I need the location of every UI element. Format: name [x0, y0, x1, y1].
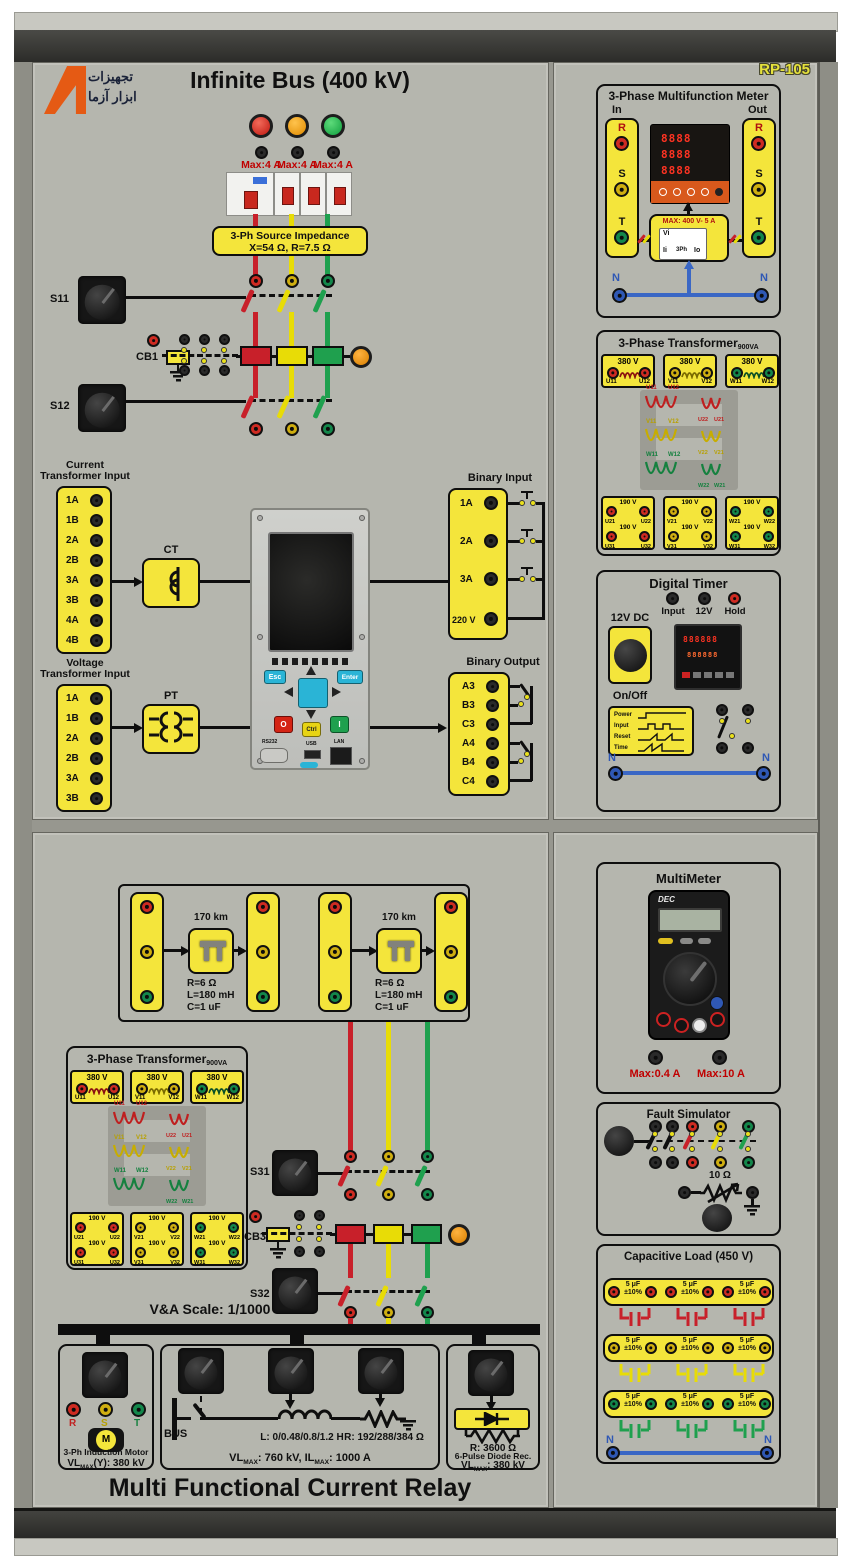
- wire: [386, 1244, 391, 1278]
- terminal-jack[interactable]: [486, 775, 499, 788]
- wire: [253, 312, 258, 348]
- banana-jack-black[interactable]: [746, 1186, 759, 1199]
- lv-voltage: 190 V: [603, 499, 653, 506]
- banana-jack-yellow[interactable]: [608, 1342, 620, 1354]
- inductor-rotary-switch[interactable]: [268, 1348, 314, 1394]
- timing-label: Input: [614, 723, 629, 730]
- terminal-jack[interactable]: [219, 365, 230, 376]
- multimeter-button[interactable]: [658, 938, 673, 944]
- fault-dashed-link: [646, 1140, 756, 1142]
- mcb-breaker[interactable]: [274, 172, 300, 216]
- wire: [177, 1417, 191, 1420]
- motor-rotary-switch[interactable]: [82, 1352, 128, 1398]
- mcb-toggle[interactable]: [334, 187, 346, 205]
- contact-dot: [518, 758, 524, 764]
- banana-jack-yellow[interactable]: [751, 182, 766, 197]
- core-label: W21: [182, 1199, 193, 1205]
- banana-jack-blue[interactable]: [606, 1446, 620, 1460]
- vi-label: Vi: [663, 230, 670, 238]
- contact-dot: [717, 1131, 723, 1137]
- meter-in-label: In: [612, 104, 622, 116]
- banana-jack-green[interactable]: [444, 990, 458, 1004]
- secondary-winding-icon: [700, 462, 722, 482]
- rcd-toggle[interactable]: [244, 191, 258, 209]
- hv-winding-box-v: 380 V V11 V12: [663, 354, 717, 388]
- terminal-jack[interactable]: [199, 334, 210, 345]
- meter-button[interactable]: [715, 188, 723, 196]
- banana-jack-green[interactable]: [763, 506, 774, 517]
- banana-jack-yellow[interactable]: [256, 945, 270, 959]
- indicator-lamp-green: [321, 114, 345, 138]
- terminal-jack[interactable]: [484, 612, 498, 626]
- relay-contact-jack[interactable]: [716, 704, 728, 716]
- contact-dot: [717, 1146, 723, 1152]
- power-knob[interactable]: [614, 639, 647, 672]
- terminal-jack[interactable]: [486, 737, 499, 750]
- wire: [542, 502, 545, 620]
- banana-jack-yellow[interactable]: [285, 274, 299, 288]
- banana-jack-green[interactable]: [421, 1150, 434, 1163]
- wire: [510, 742, 520, 745]
- rating-part: (Y): 380 kV: [93, 1458, 144, 1469]
- rectifier-rating: VLMAX: 380 kV: [446, 1460, 540, 1474]
- line-spec-l: L=180 mH: [187, 990, 235, 1001]
- banana-jack-yellow[interactable]: [722, 1342, 734, 1354]
- banana-jack-blue[interactable]: [760, 1446, 774, 1460]
- banana-jack-red[interactable]: [249, 274, 263, 288]
- probe-jack[interactable]: [656, 1012, 671, 1027]
- indicator-lamp-red: [249, 114, 273, 138]
- banana-jack-yellow[interactable]: [444, 945, 458, 959]
- banana-jack-red[interactable]: [645, 1286, 657, 1298]
- timer-button[interactable]: [682, 672, 690, 678]
- timer-input-jack[interactable]: [666, 592, 679, 605]
- usb-port[interactable]: [304, 750, 321, 759]
- banana-jack-red[interactable]: [249, 422, 263, 436]
- banana-jack-red[interactable]: [66, 1402, 81, 1417]
- banana-jack-yellow[interactable]: [668, 506, 679, 517]
- banana-jack-yellow[interactable]: [614, 182, 629, 197]
- terminal-jack[interactable]: [90, 614, 103, 627]
- timer-hold-jack[interactable]: [728, 592, 741, 605]
- banana-jack-red[interactable]: [76, 1083, 88, 1095]
- banana-jack-yellow[interactable]: [136, 1083, 148, 1095]
- banana-jack-red[interactable]: [686, 1156, 699, 1169]
- timing-label: Power: [614, 712, 632, 719]
- core-label: U22: [698, 417, 708, 423]
- banana-jack-yellow[interactable]: [665, 1342, 677, 1354]
- terminal-jack[interactable]: [486, 680, 499, 693]
- phase-r-label: R: [742, 122, 776, 134]
- terminal-jack[interactable]: [90, 634, 103, 647]
- banana-jack-green[interactable]: [228, 1222, 239, 1233]
- relay-contact-jack[interactable]: [742, 742, 754, 754]
- banana-jack-yellow[interactable]: [328, 945, 342, 959]
- rating-part: : 1000 A: [329, 1452, 371, 1464]
- banana-jack-red[interactable]: [607, 367, 619, 379]
- banana-jack-red[interactable]: [606, 506, 617, 517]
- contact-dot: [745, 718, 751, 724]
- banana-jack-black[interactable]: [666, 1156, 679, 1169]
- banana-jack-green[interactable]: [421, 1188, 434, 1201]
- multimeter-button[interactable]: [698, 938, 711, 944]
- ctrl-button[interactable]: Ctrl: [302, 722, 321, 737]
- probe-jack[interactable]: [710, 1012, 725, 1027]
- wire: [510, 722, 532, 725]
- terminal-jack[interactable]: [90, 692, 103, 705]
- terminal-jack[interactable]: [90, 752, 103, 765]
- banana-jack-red[interactable]: [722, 1286, 734, 1298]
- fuse-holder-icon[interactable]: [255, 146, 268, 159]
- banana-jack-yellow[interactable]: [168, 1247, 179, 1258]
- core-label: V22: [698, 450, 708, 456]
- wire: [386, 1022, 391, 1154]
- mcb-breaker[interactable]: [300, 172, 326, 216]
- transformer-title-sub: 900VA: [738, 344, 759, 351]
- banana-jack-green[interactable]: [228, 1083, 240, 1095]
- banana-jack-red[interactable]: [639, 367, 651, 379]
- contact-dot: [201, 358, 207, 364]
- meter-button[interactable]: [701, 188, 709, 196]
- off-button[interactable]: O: [274, 716, 293, 733]
- terminal-label: 1B: [66, 515, 79, 526]
- cb1-lamp-amber: [350, 346, 372, 368]
- cap-tol: ±10%: [681, 1289, 699, 1296]
- multimeter-title: MultiMeter: [596, 872, 781, 887]
- terminal-jack[interactable]: [294, 1246, 305, 1257]
- lv-winding-box-w: 190 V W21W22 190 V W31W32: [725, 496, 779, 550]
- banana-jack-yellow[interactable]: [701, 367, 713, 379]
- frame-left-strip: [14, 62, 34, 1508]
- terminal-jack[interactable]: [179, 365, 190, 376]
- lv-winding-box-u: 190 V U21U22 190 V U31U32: [70, 1212, 124, 1266]
- timer-button[interactable]: [726, 672, 734, 678]
- banana-jack-yellow[interactable]: [382, 1188, 395, 1201]
- timer-button[interactable]: [704, 672, 712, 678]
- terminal-jack[interactable]: [90, 534, 103, 547]
- meter-button[interactable]: [659, 188, 667, 196]
- line-spec-r: R=6 Ω: [187, 978, 216, 989]
- banana-jack-green[interactable]: [730, 506, 741, 517]
- terminal-jack[interactable]: [90, 712, 103, 725]
- on-button[interactable]: I: [330, 716, 349, 733]
- pushbutton-stem: [526, 491, 528, 499]
- bus-rotary-switch[interactable]: [178, 1348, 224, 1394]
- cap-tol: ±10%: [681, 1345, 699, 1352]
- banana-jack-green[interactable]: [195, 1222, 206, 1233]
- esc-button[interactable]: Esc: [264, 670, 286, 684]
- contact-dot: [316, 1224, 322, 1230]
- banana-jack-yellow[interactable]: [714, 1156, 727, 1169]
- ct-input-title2: Transformer Input: [30, 471, 140, 483]
- banana-jack-red[interactable]: [751, 136, 766, 151]
- banana-jack-green[interactable]: [702, 1398, 714, 1410]
- banana-jack-yellow[interactable]: [668, 531, 679, 542]
- timer-button[interactable]: [693, 672, 701, 678]
- primary-winding-icon: [112, 1110, 146, 1130]
- banana-jack-red[interactable]: [639, 506, 650, 517]
- mcb-toggle[interactable]: [282, 187, 294, 205]
- probe-jack[interactable]: [674, 1018, 689, 1033]
- terminal-label: 2A: [66, 535, 79, 546]
- relay-contact-jack[interactable]: [716, 742, 728, 754]
- banana-jack-green[interactable]: [195, 1247, 206, 1258]
- rcd-breaker[interactable]: [226, 172, 274, 216]
- meter-button[interactable]: [673, 188, 681, 196]
- banana-jack-green[interactable]: [256, 990, 270, 1004]
- cb3-contactor-red: [335, 1224, 366, 1244]
- wire: [425, 1244, 430, 1278]
- banana-jack-yellow[interactable]: [140, 945, 154, 959]
- wire: [325, 214, 330, 226]
- wire: [325, 366, 330, 398]
- banana-jack-green[interactable]: [140, 990, 154, 1004]
- banana-jack-green[interactable]: [763, 367, 775, 379]
- terminal-label: B3: [462, 700, 475, 711]
- banana-jack-green[interactable]: [645, 1398, 657, 1410]
- impedance-line1: 3-Ph Source Impedance: [214, 231, 366, 243]
- arrow-left-key[interactable]: [284, 687, 293, 697]
- meter-interface-box: MAX: 400 V- 5 A Vi Ii 3Ph Io: [649, 214, 729, 262]
- terminal-jack[interactable]: [219, 334, 230, 345]
- ii-label: Ii: [663, 247, 667, 255]
- s31-rotary-switch[interactable]: [272, 1150, 318, 1196]
- frame-bottom-light: [14, 1538, 838, 1556]
- lv-winding-box-w: 190 V W21W22 190 V W31W32: [190, 1212, 244, 1266]
- ground-icon: [744, 1205, 760, 1216]
- banana-jack-red[interactable]: [444, 900, 458, 914]
- terminal-jack[interactable]: [90, 514, 103, 527]
- banana-jack-red[interactable]: [614, 136, 629, 151]
- wire: [348, 1022, 353, 1154]
- relay-led-row: [272, 658, 352, 665]
- terminal-jack[interactable]: [90, 772, 103, 785]
- rectifier-rotary-switch[interactable]: [468, 1350, 514, 1396]
- terminal-jack[interactable]: [484, 572, 498, 586]
- banana-jack-red[interactable]: [75, 1222, 86, 1233]
- terminal-jack[interactable]: [294, 1210, 305, 1221]
- meter-button[interactable]: [687, 188, 695, 196]
- banana-jack-red[interactable]: [344, 1150, 357, 1163]
- timer-12v-jack[interactable]: [698, 592, 711, 605]
- relay-contact-jack[interactable]: [742, 704, 754, 716]
- terminal-jack[interactable]: [314, 1246, 325, 1257]
- banana-jack-red[interactable]: [140, 900, 154, 914]
- banana-jack-red[interactable]: [108, 1083, 120, 1095]
- secondary-winding-icon: [168, 1178, 190, 1198]
- terminal-jack[interactable]: [314, 1210, 325, 1221]
- lv-winding-box-u: 190 V U21U22 190 V U31U32: [601, 496, 655, 550]
- banana-jack-green[interactable]: [614, 230, 629, 245]
- multimeter-dial[interactable]: [663, 952, 717, 1006]
- timer-button[interactable]: [715, 672, 723, 678]
- timer-12v-label: 12V: [690, 607, 718, 618]
- terminal-jack[interactable]: [90, 494, 103, 507]
- banana-jack-green[interactable]: [131, 1402, 146, 1417]
- line-spec-c: C=1 uF: [375, 1002, 409, 1013]
- banana-jack-yellow[interactable]: [759, 1342, 771, 1354]
- probe-jack[interactable]: [692, 1018, 707, 1033]
- phase-s-label: S: [605, 168, 639, 180]
- banana-jack-green[interactable]: [321, 422, 335, 436]
- lv-voltage: 190 V: [727, 499, 777, 506]
- bus-label: BUS: [164, 1428, 187, 1440]
- banana-jack-red[interactable]: [606, 531, 617, 542]
- wire: [510, 761, 518, 764]
- banana-jack-red[interactable]: [759, 1286, 771, 1298]
- terminal-jack[interactable]: [486, 756, 499, 769]
- hv-winding-box-w: 380 V W11 W12: [190, 1070, 244, 1104]
- banana-jack-green[interactable]: [228, 1247, 239, 1258]
- fuse-holder-icon[interactable]: [648, 1050, 663, 1065]
- arrow-up-key[interactable]: [306, 666, 316, 675]
- banana-jack-yellow[interactable]: [135, 1222, 146, 1233]
- fault-resistor-knob[interactable]: [702, 1204, 732, 1232]
- banana-jack-red[interactable]: [639, 531, 650, 542]
- terminal-jack[interactable]: [90, 554, 103, 567]
- core-label: W12: [668, 452, 680, 459]
- banana-jack-red[interactable]: [344, 1188, 357, 1201]
- screw-icon: [257, 634, 263, 640]
- banana-jack-yellow[interactable]: [669, 367, 681, 379]
- banana-jack-red[interactable]: [328, 900, 342, 914]
- banana-jack-red[interactable]: [147, 334, 160, 347]
- banana-jack-yellow[interactable]: [285, 422, 299, 436]
- resistor-rotary-switch[interactable]: [358, 1348, 404, 1394]
- rs232-port[interactable]: [260, 748, 288, 763]
- banana-jack-blue[interactable]: [608, 766, 623, 781]
- usb-label: USB: [306, 742, 317, 748]
- transformer-title-text: 3-Phase Transformer: [618, 336, 737, 350]
- banana-jack-green[interactable]: [742, 1156, 755, 1169]
- banana-jack-red[interactable]: [665, 1286, 677, 1298]
- primary-winding-icon: [644, 394, 678, 414]
- terminal-label: 2A: [460, 536, 473, 547]
- wire: [530, 743, 533, 781]
- rating-part: VL: [461, 1460, 474, 1471]
- banana-jack-red[interactable]: [249, 1210, 262, 1223]
- fuse-holder-icon[interactable]: [291, 146, 304, 159]
- cap-value: 5 μF±10%: [734, 1393, 760, 1409]
- impedance-line2: X=54 Ω, R=7.5 Ω: [214, 243, 366, 255]
- contact-dot: [181, 358, 187, 364]
- mcb-breaker[interactable]: [326, 172, 352, 216]
- terminal-jack[interactable]: [484, 534, 498, 548]
- terminal-jack[interactable]: [486, 699, 499, 712]
- terminal-jack[interactable]: [484, 496, 498, 510]
- banana-jack-blue[interactable]: [612, 288, 627, 303]
- timing-label: Time: [614, 745, 628, 752]
- multimeter-button[interactable]: [680, 938, 693, 944]
- banana-jack-blue[interactable]: [756, 766, 771, 781]
- banana-jack-blue[interactable]: [754, 288, 769, 303]
- banana-jack-black[interactable]: [678, 1186, 691, 1199]
- enter-button[interactable]: Enter: [337, 670, 363, 684]
- banana-jack-green[interactable]: [608, 1398, 620, 1410]
- banana-jack-green[interactable]: [665, 1398, 677, 1410]
- banana-jack-yellow[interactable]: [382, 1150, 395, 1163]
- cap-tol: ±10%: [738, 1345, 756, 1352]
- neutral-label: N: [606, 1434, 614, 1446]
- banana-jack-green[interactable]: [763, 531, 774, 542]
- wire: [425, 1022, 430, 1154]
- terminal-jack[interactable]: [199, 365, 210, 376]
- banana-jack-yellow[interactable]: [645, 1342, 657, 1354]
- fault-knob[interactable]: [604, 1126, 634, 1156]
- banana-jack-black[interactable]: [649, 1156, 662, 1169]
- lv-voltage: 190 V: [192, 1240, 242, 1247]
- banana-jack-green[interactable]: [328, 990, 342, 1004]
- banana-jack-red[interactable]: [702, 1286, 714, 1298]
- terminal-jack[interactable]: [90, 574, 103, 587]
- banana-jack-red[interactable]: [608, 1286, 620, 1298]
- banana-jack-red[interactable]: [108, 1247, 119, 1258]
- terminal-label: W32: [764, 544, 775, 550]
- fuse-holder-icon[interactable]: [712, 1050, 727, 1065]
- banana-jack-green[interactable]: [196, 1083, 208, 1095]
- mcb-toggle[interactable]: [308, 187, 320, 205]
- arrow-down-key[interactable]: [306, 710, 316, 719]
- contact-dot: [745, 1146, 751, 1152]
- fuse-holder-icon[interactable]: [327, 146, 340, 159]
- terminal-jack[interactable]: [179, 334, 190, 345]
- banana-jack-red[interactable]: [108, 1222, 119, 1233]
- banana-jack-yellow[interactable]: [701, 531, 712, 542]
- cap-value: 5 μF±10%: [734, 1337, 760, 1353]
- banana-jack-yellow[interactable]: [168, 1083, 180, 1095]
- banana-jack-yellow[interactable]: [168, 1222, 179, 1233]
- banana-jack-red[interactable]: [256, 900, 270, 914]
- terminal-label: V12: [168, 1095, 179, 1101]
- blue-adjust-knob[interactable]: [710, 996, 724, 1010]
- binary-output-box: [448, 672, 510, 796]
- core-label: U21: [182, 1133, 192, 1139]
- pushbutton-stem: [526, 529, 528, 537]
- lan-port[interactable]: [330, 747, 352, 765]
- ground-icon: [270, 1248, 286, 1259]
- terminal-label: W12: [227, 1095, 239, 1101]
- terminal-jack[interactable]: [90, 792, 103, 805]
- rs232-label: RS232: [262, 740, 277, 746]
- banana-jack-yellow[interactable]: [135, 1247, 146, 1258]
- primary-winding-icon: [112, 1143, 146, 1163]
- banana-jack-red[interactable]: [75, 1247, 86, 1258]
- banana-jack-green[interactable]: [730, 531, 741, 542]
- banana-jack-green[interactable]: [722, 1398, 734, 1410]
- terminal-jack[interactable]: [90, 732, 103, 745]
- banana-jack-green[interactable]: [321, 274, 335, 288]
- cap-value: 5 μF±10%: [620, 1281, 646, 1297]
- wire: [289, 214, 294, 226]
- s12-rotary-switch[interactable]: [78, 384, 126, 432]
- banana-jack-yellow[interactable]: [701, 506, 712, 517]
- multimeter-device: DEC: [648, 890, 730, 1040]
- terminal-jack[interactable]: [486, 718, 499, 731]
- s11-rotary-switch[interactable]: [78, 276, 126, 324]
- banana-jack-green[interactable]: [759, 1398, 771, 1410]
- core-label: W21: [714, 483, 725, 489]
- infinite-bus-title: Infinite Bus (400 kV): [140, 68, 460, 94]
- source-impedance-box: 3-Ph Source Impedance X=54 Ω, R=7.5 Ω: [212, 226, 368, 256]
- cb3-contactor-green: [411, 1224, 442, 1244]
- arrow-right-key[interactable]: [332, 687, 341, 697]
- banana-jack-yellow[interactable]: [702, 1342, 714, 1354]
- banana-jack-yellow[interactable]: [98, 1402, 113, 1417]
- banana-jack-green[interactable]: [731, 367, 743, 379]
- banana-jack-green[interactable]: [751, 230, 766, 245]
- core-label: W22: [698, 483, 709, 489]
- terminal-jack[interactable]: [90, 594, 103, 607]
